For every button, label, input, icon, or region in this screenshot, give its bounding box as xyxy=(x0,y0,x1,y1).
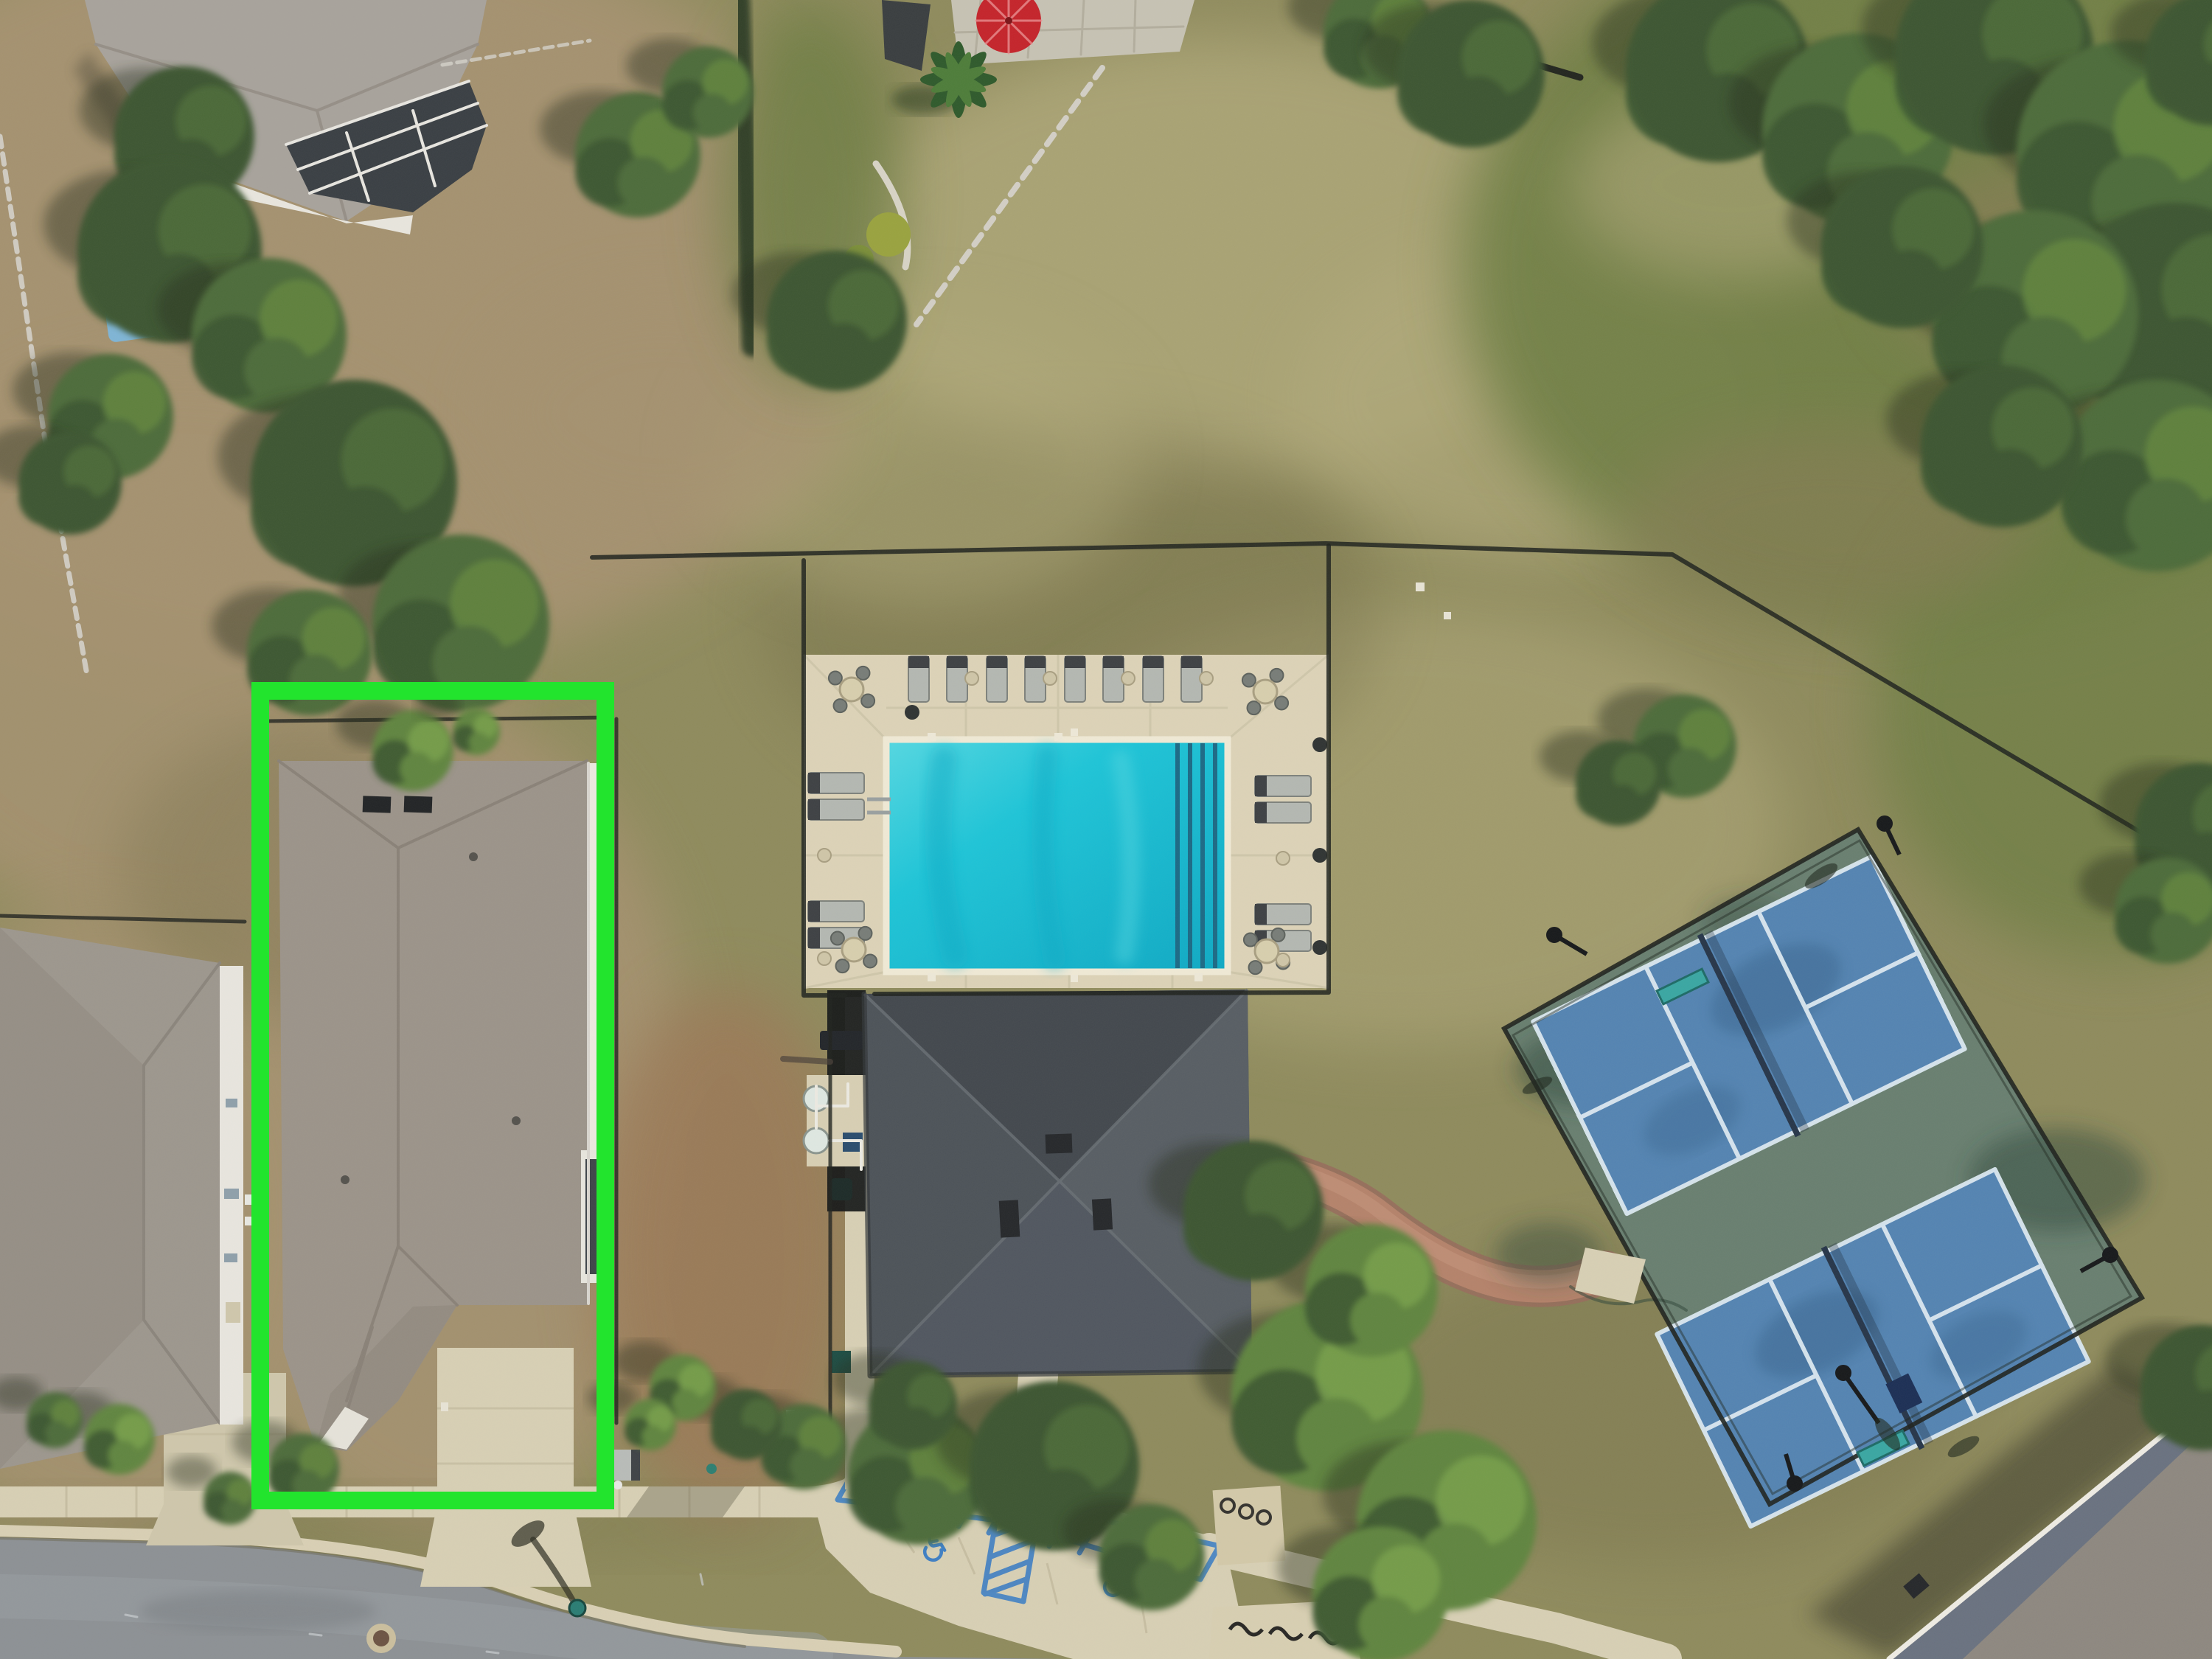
aerial-photo xyxy=(0,0,2212,1659)
scene xyxy=(0,0,2212,1659)
photo-grain xyxy=(0,0,2212,1659)
